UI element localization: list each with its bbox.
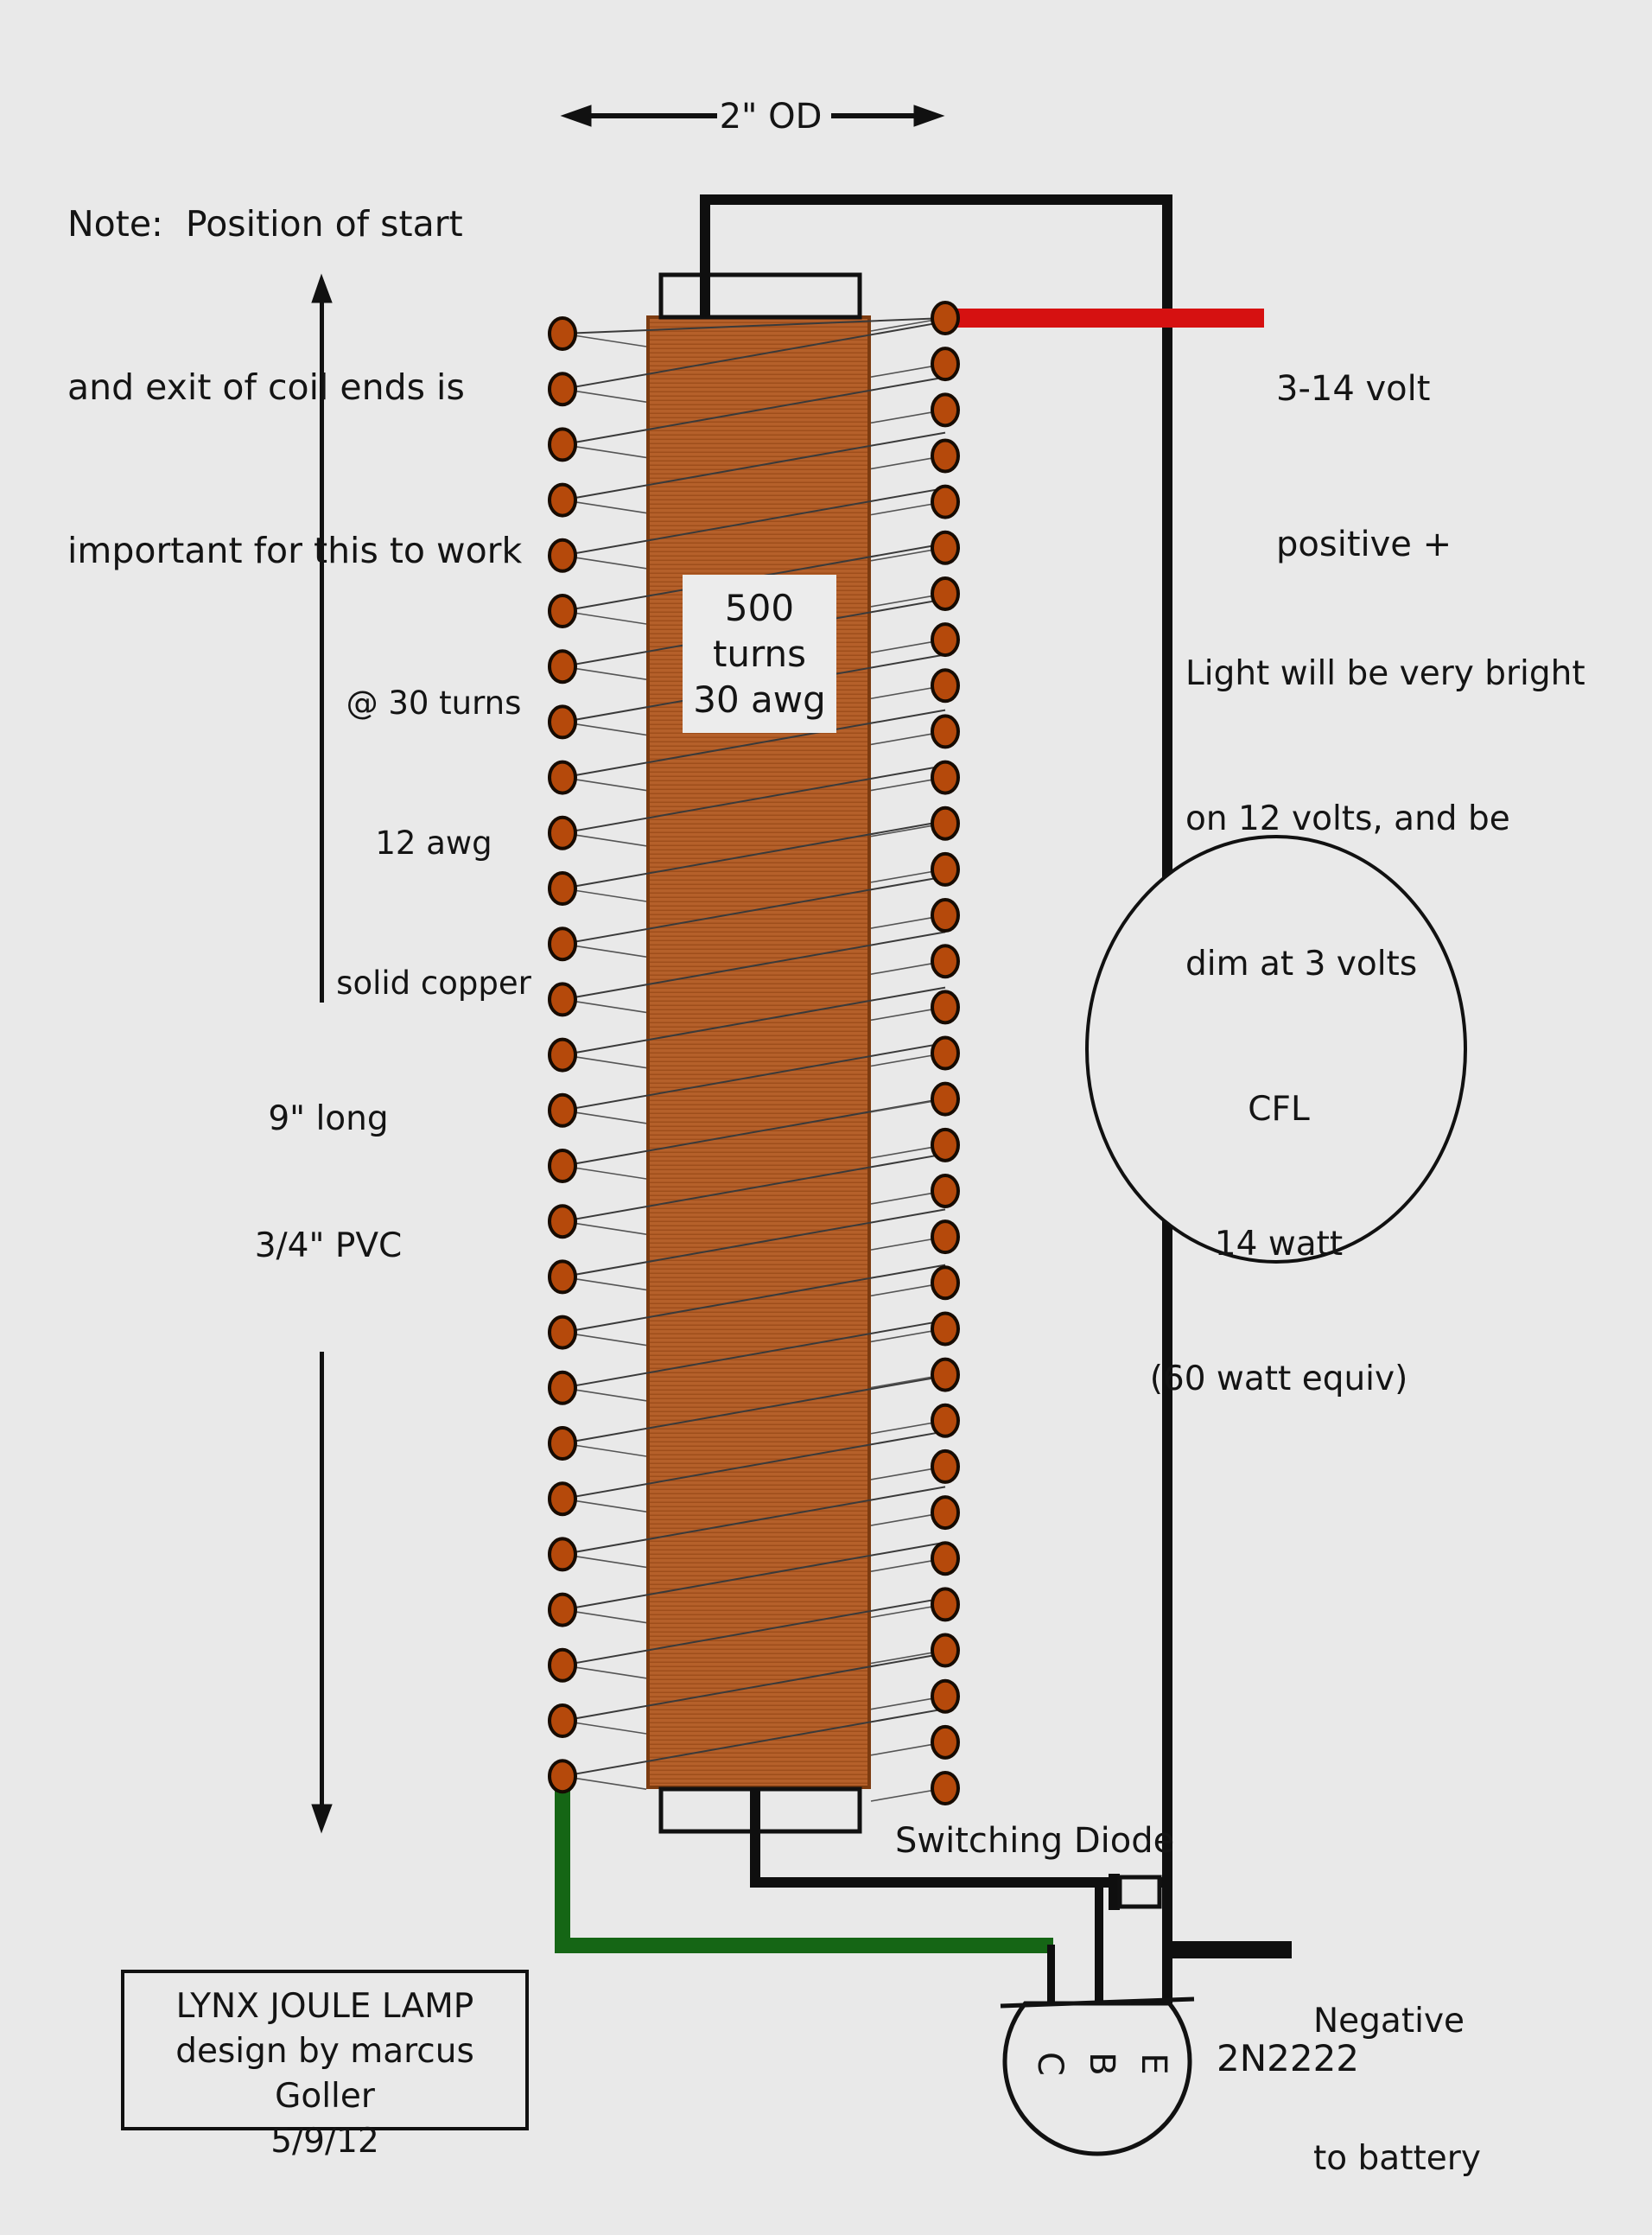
- secondary-line: 500: [683, 585, 836, 631]
- winding-wire: [562, 1487, 945, 1554]
- title-box: LYNX JOULE LAMP design by marcus Goller …: [121, 1970, 529, 2130]
- coil-wire-end-dot: [932, 348, 958, 379]
- pvc-stub-top: [661, 275, 860, 317]
- coil-wire-end-dot: [550, 1705, 575, 1736]
- coil-wire-end-dot: [932, 900, 958, 931]
- pin-label-emitter: E: [1128, 2045, 1173, 2083]
- coil-wire-end-dot: [550, 1595, 575, 1626]
- winding-wire: [562, 1043, 945, 1111]
- pin-label-collector: C: [1025, 2045, 1070, 2083]
- secondary-coil-label-box: 500 turns 30 awg: [683, 575, 836, 733]
- od-dimension-label: 2" OD: [710, 97, 831, 137]
- positive-wire: [957, 309, 1264, 328]
- coil-wire-end-dot: [550, 1261, 575, 1292]
- brightness-line: on 12 volts, and be: [1185, 795, 1585, 844]
- coil-wire-end-dot: [550, 540, 575, 571]
- coil-wire-end-dot: [932, 1267, 958, 1298]
- winding-wire: [562, 766, 945, 833]
- brightness-line: Light will be very bright: [1185, 650, 1585, 698]
- wire-coil-start-top: [700, 194, 710, 317]
- title-line: 5/9/12: [124, 2119, 525, 2164]
- title-line: design by marcus Goller: [124, 2029, 525, 2119]
- cfl-line: 14 watt: [1149, 1222, 1408, 1267]
- wire-bottom-horizontal: [750, 1877, 1167, 1888]
- transistor-part-number: 2N2222: [1217, 2037, 1359, 2079]
- coil-wire-end-dot: [550, 1372, 575, 1404]
- coil-wire-end-dot: [932, 1727, 958, 1758]
- winding-wire: [562, 876, 945, 944]
- diode-body: [1120, 1877, 1160, 1907]
- primary-line: @ 30 turns: [300, 680, 568, 727]
- winding-wire: [562, 988, 945, 1055]
- note-line: important for this to work: [67, 524, 522, 578]
- coil-wire-end-dot: [550, 429, 575, 460]
- wire-coil-end-bottom: [750, 1789, 760, 1888]
- coil-wire-end-dot: [932, 394, 958, 425]
- coil-wire-end-dot: [550, 1538, 575, 1570]
- pvc-length-label: 9" long 3/4" PVC: [235, 1013, 422, 1352]
- negative-line: to battery: [1313, 2136, 1481, 2181]
- primary-line: solid copper: [300, 960, 568, 1007]
- coil-wire-end-dot: [932, 1635, 958, 1666]
- coil-wire-end-dot: [932, 991, 958, 1022]
- secondary-line: turns: [683, 631, 836, 677]
- coil-wire-end-dot: [932, 1681, 958, 1712]
- winding-wire: [562, 1209, 945, 1277]
- winding-wire: [562, 1543, 945, 1610]
- coil-wire-end-dot: [932, 1130, 958, 1161]
- circuit-diagram: Note: Position of start and exit of coil…: [0, 0, 1652, 2235]
- coil-wire-end-dot: [932, 440, 958, 471]
- coil-wire-end-dot: [932, 1773, 958, 1804]
- winding-wire: [562, 488, 945, 556]
- note-line: Note: Position of start: [67, 197, 522, 252]
- cfl-label: CFL 14 watt (60 watt equiv): [1149, 997, 1408, 1492]
- secondary-line: 30 awg: [683, 677, 836, 723]
- winding-wire: [562, 377, 945, 444]
- coil-wire-end-dot: [932, 716, 958, 747]
- green-wire-vertical: [555, 1782, 570, 1953]
- negative-wire: [1167, 1941, 1292, 1958]
- wire-top-horizontal: [700, 194, 1172, 205]
- coil-wire-end-dot: [932, 946, 958, 977]
- base-lead: [1095, 1888, 1103, 2003]
- winding-wire: [562, 932, 945, 999]
- coil-wire-end-dot: [550, 373, 575, 404]
- coil-wire-end-dot: [932, 1497, 958, 1528]
- primary-line: 12 awg: [300, 820, 568, 867]
- coil-wire-end-dot: [550, 1761, 575, 1792]
- winding-wire: [562, 1709, 945, 1776]
- winding-wire: [562, 1321, 945, 1388]
- coil-wire-end-dot: [932, 1543, 958, 1574]
- switching-diode-label: Switching Diode: [895, 1821, 1174, 1861]
- coil-wire-end-dot: [932, 1038, 958, 1069]
- cfl-line: (60 watt equiv): [1149, 1357, 1408, 1402]
- coil-wire-end-dot: [550, 1317, 575, 1348]
- green-wire-horizontal: [555, 1938, 1053, 1953]
- coil-wire-end-dot: [550, 1428, 575, 1459]
- winding-wire: [562, 1154, 945, 1221]
- coil-wire-end-dot: [932, 578, 958, 609]
- coil-wire-end-dot: [932, 1359, 958, 1391]
- coil-wire-end-dot: [932, 670, 958, 701]
- coil-wire-end-dot: [932, 302, 958, 334]
- brightness-line: dim at 3 volts: [1185, 940, 1585, 989]
- coil-wire-end-dot: [932, 1084, 958, 1115]
- winding-wire: [562, 1653, 945, 1721]
- pvc-line: 9" long: [235, 1098, 422, 1140]
- pin-label-base: B: [1077, 2045, 1121, 2083]
- winding-wire: [562, 1265, 945, 1333]
- collector-lead: [1047, 1945, 1055, 2003]
- cfl-line: CFL: [1149, 1087, 1408, 1132]
- coil-wire-end-dot: [932, 532, 958, 564]
- coil-wire-end-dot: [932, 1313, 958, 1344]
- coil-wire-end-dot: [932, 487, 958, 518]
- winding-wire: [562, 821, 945, 888]
- coil-wire-end-dot: [550, 485, 575, 516]
- coil-wire-end-dot: [932, 1221, 958, 1252]
- positive-line: 3-14 volt: [1276, 363, 1452, 415]
- coil-wire-end-dot: [932, 624, 958, 655]
- winding-wire: [562, 1376, 945, 1443]
- winding-lines: [562, 318, 945, 1801]
- coil-wire-end-dot: [550, 1650, 575, 1681]
- note-line: and exit of coil ends is: [67, 360, 522, 415]
- title-line: LYNX JOULE LAMP: [124, 1984, 525, 2029]
- pvc-line: 3/4" PVC: [235, 1225, 422, 1267]
- coil-wire-end-dot: [932, 1175, 958, 1207]
- coil-wire-end-dot: [932, 1589, 958, 1620]
- coil-wire-end-dot: [932, 1451, 958, 1482]
- coil-wire-end-dot: [550, 318, 575, 349]
- coil-wire-end-dot: [932, 808, 958, 839]
- coil-wire-end-dot: [932, 854, 958, 885]
- coil-wire-end-dot: [550, 1483, 575, 1514]
- coil-wire-end-dot: [932, 762, 958, 793]
- coil-wire-end-dot: [932, 1405, 958, 1436]
- winding-wire: [562, 1598, 945, 1665]
- winding-wire: [562, 1431, 945, 1499]
- coil-wire-end-dot: [550, 1150, 575, 1181]
- coil-dots: [550, 302, 958, 1804]
- coil-wire-end-dot: [550, 1206, 575, 1237]
